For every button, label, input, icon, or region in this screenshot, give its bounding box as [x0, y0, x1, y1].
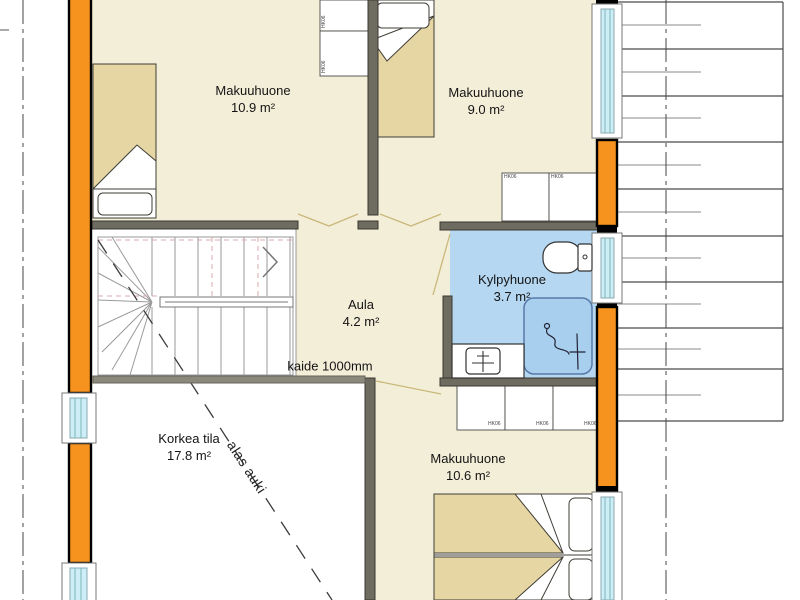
- window: [592, 492, 622, 600]
- room-name: Makuuhuone: [448, 84, 523, 101]
- room-name: Aula: [343, 296, 380, 313]
- wall: [443, 296, 452, 386]
- closet-label: HK06: [322, 60, 327, 73]
- bed-pillow-upper: [569, 498, 593, 551]
- shower-icon: [524, 298, 592, 374]
- room-name: Makuuhuone: [215, 82, 290, 99]
- bed-pillow: [377, 3, 429, 28]
- wall: [368, 0, 378, 215]
- exterior-wall: [69, 443, 91, 563]
- wall: [440, 222, 600, 230]
- shower-tray: [524, 298, 592, 374]
- room-area: 10.9 m²: [215, 99, 290, 116]
- window-glass: [601, 497, 614, 600]
- floor-plan-drawing: [0, 0, 800, 600]
- toilet-tank: [578, 244, 592, 271]
- window-glass: [601, 9, 614, 133]
- bed-pillow-lower: [569, 559, 593, 600]
- room-area: 3.7 m²: [478, 288, 546, 305]
- room-name: Kylpyhuone: [478, 271, 546, 288]
- wardrobe: [549, 173, 597, 221]
- window: [592, 4, 622, 138]
- window: [62, 563, 96, 600]
- room-label-void: Korkea tila 17.8 m²: [158, 430, 219, 464]
- room-area: 10.6 m²: [430, 467, 505, 484]
- wall: [358, 221, 378, 229]
- bed-bedroom1: [93, 64, 156, 218]
- toilet-bowl: [543, 242, 581, 273]
- bed-bedroom3: [434, 494, 596, 600]
- window: [62, 393, 96, 443]
- bed-pillow: [98, 193, 152, 215]
- wardrobe: [320, 0, 368, 31]
- wardrobe: [502, 173, 549, 221]
- closet-label: HK06: [584, 422, 597, 427]
- closet-label: HK06: [488, 422, 501, 427]
- wall: [440, 378, 600, 386]
- sink-icon: [452, 344, 524, 378]
- wall-cap: [597, 486, 617, 492]
- room-area: 9.0 m²: [448, 101, 523, 118]
- stair-railing: [93, 376, 365, 383]
- room-label-bedroom2: Makuuhuone 9.0 m²: [448, 84, 523, 118]
- window: [592, 233, 622, 303]
- wall: [365, 378, 375, 600]
- wall: [92, 221, 298, 229]
- room-label-bedroom1: Makuuhuone 10.9 m²: [215, 82, 290, 116]
- room-area: 4.2 m²: [343, 313, 380, 330]
- deck-lines: [617, 2, 783, 421]
- wall-cap: [597, 227, 617, 233]
- void-floor: [92, 383, 365, 600]
- room-label-bedroom3: Makuuhuone 10.6 m²: [430, 450, 505, 484]
- window-glass: [70, 398, 87, 438]
- exterior-wall: [597, 307, 617, 492]
- room-label-bathroom: Kylpyhuone 3.7 m²: [478, 271, 546, 305]
- exterior-wall: [69, 0, 91, 393]
- wardrobe: [320, 31, 368, 76]
- bed-bedroom2: [372, 0, 434, 137]
- room-label-hall: Aula 4.2 m²: [343, 296, 380, 330]
- window-glass: [601, 238, 614, 298]
- room-area: 17.8 m²: [158, 447, 219, 464]
- deck-half-lines: [617, 25, 701, 395]
- room-name: Makuuhuone: [430, 450, 505, 467]
- closet-label: HK06: [551, 175, 564, 180]
- exterior-wall: [597, 140, 617, 226]
- toilet-icon: [543, 242, 592, 273]
- window-glass: [70, 568, 87, 600]
- railing-label: kaide 1000mm: [287, 359, 372, 374]
- room-name: Korkea tila: [158, 430, 219, 447]
- floor-plan: Makuuhuone 10.9 m² Makuuhuone 9.0 m² Kyl…: [0, 0, 800, 600]
- closet-label: HK06: [504, 175, 517, 180]
- closet-label: HK06: [322, 15, 327, 28]
- closet-label: HK06: [536, 422, 549, 427]
